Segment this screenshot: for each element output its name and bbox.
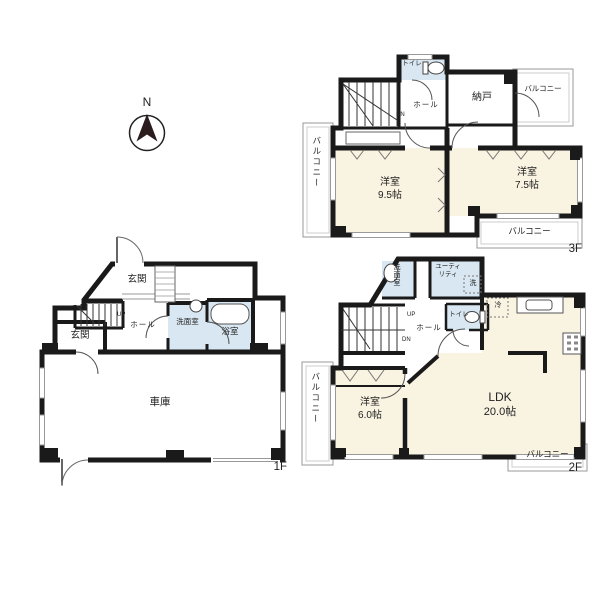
sink-icon <box>190 300 202 312</box>
stove-icon <box>563 333 581 354</box>
window <box>345 455 393 460</box>
label-hall-1f: ホール <box>122 321 164 330</box>
window <box>352 233 410 238</box>
label-bedroom95-name: 洋室 <box>360 177 420 189</box>
column <box>250 343 268 353</box>
window <box>40 368 45 398</box>
window <box>581 370 586 422</box>
label-toilet-3f: トイレ <box>399 60 425 67</box>
floor-label-3f: 3F <box>550 243 582 256</box>
label-balcony-3f-left: バルコニー <box>311 136 321 228</box>
window <box>424 455 482 460</box>
label-ldk-name: LDK <box>455 391 545 405</box>
label-bedroom6-name: 洋室 <box>340 397 400 409</box>
label-hall-2f: ホール <box>408 324 450 333</box>
column <box>166 450 184 460</box>
label-dn-3f: DN <box>396 112 410 119</box>
window <box>331 158 336 200</box>
column <box>570 149 580 160</box>
washroom-1f-room <box>168 303 207 352</box>
door-arc <box>438 329 465 356</box>
toilet-tank <box>480 311 485 323</box>
window <box>331 385 336 440</box>
window <box>40 415 45 445</box>
column <box>399 448 409 457</box>
label-balcony-3f-bottom: バルコニー <box>480 227 579 237</box>
door-arc <box>412 80 432 100</box>
label-balcony-3f-top-right: バルコニー <box>515 85 571 94</box>
stove-body <box>563 333 581 354</box>
label-entrance-lower: 玄関 <box>57 331 103 342</box>
door-arc <box>76 352 98 374</box>
label-washer: 洗 <box>468 280 478 288</box>
floorplan-svg <box>0 0 600 600</box>
label-bedroom95-size: 9.5帖 <box>360 190 420 202</box>
column <box>571 205 580 216</box>
north-arrow-icon <box>137 114 158 142</box>
closet <box>346 132 400 144</box>
balcony-outline <box>513 69 573 126</box>
column <box>334 448 346 457</box>
label-storage-3f: 納戸 <box>452 92 512 104</box>
label-up-2f: UP <box>407 312 421 319</box>
column <box>504 73 515 84</box>
door-gap <box>115 261 144 267</box>
label-bedroom75-name: 洋室 <box>497 167 557 179</box>
label-fridge: 冷 <box>493 302 503 310</box>
column <box>42 343 58 353</box>
window <box>408 55 432 60</box>
label-garage: 車庫 <box>130 396 190 408</box>
bathtub-icon <box>211 304 249 324</box>
door-arc <box>453 330 469 346</box>
compass-north-label: N <box>140 96 154 110</box>
label-dn-2f: DN <box>402 337 416 344</box>
door-arc <box>117 237 143 263</box>
stairs-2f <box>341 307 405 351</box>
toilet-bowl <box>428 62 444 74</box>
window <box>281 392 286 430</box>
window <box>578 158 583 202</box>
label-bedroom75-size: 7.5帖 <box>497 180 557 192</box>
label-utility-line1: ユーティ <box>430 263 466 270</box>
label-balcony-2f-left: バルコニー <box>310 372 320 460</box>
floor-2f <box>302 259 587 471</box>
column <box>42 448 58 460</box>
window <box>281 312 286 344</box>
compass <box>130 114 165 151</box>
label-washroom-2f: 洗面室 <box>392 263 400 297</box>
label-ldk-size: 20.0帖 <box>455 406 545 419</box>
column <box>271 448 285 460</box>
column <box>334 226 346 235</box>
counter-sink <box>526 300 552 310</box>
label-bathroom: 浴室 <box>211 327 249 337</box>
label-balcony-2f-bottom: バルコニー <box>510 450 585 460</box>
label-up-1f: UP <box>117 312 131 319</box>
floor-label-1f: 1F <box>255 461 287 474</box>
ldk-room <box>405 296 583 457</box>
stair-treads <box>341 307 405 351</box>
door-arc <box>62 460 88 486</box>
label-entrance-upper: 玄関 <box>112 275 162 286</box>
floor-1f <box>40 237 286 486</box>
window <box>581 308 586 336</box>
label-utility-line2: リティ <box>430 271 466 278</box>
label-hall-3f: ホール <box>406 101 446 110</box>
kitchen-counter <box>517 297 563 313</box>
column <box>468 206 480 216</box>
label-washroom-1f: 洗面室 <box>169 318 206 327</box>
window <box>497 214 559 219</box>
label-toilet-2f: トイレ <box>447 311 471 318</box>
balcony-3f-top-right <box>513 69 573 126</box>
floor-plan-page: N トイレ ホール DN 納戸 洋室 9.5帖 洋室 7.5帖 バルコニー バル… <box>0 0 600 600</box>
column <box>574 296 583 308</box>
stairs-3f <box>343 82 397 126</box>
label-bedroom6-size: 6.0帖 <box>340 410 400 422</box>
floor-label-2f: 2F <box>550 462 582 475</box>
toilet-icon <box>423 62 444 74</box>
